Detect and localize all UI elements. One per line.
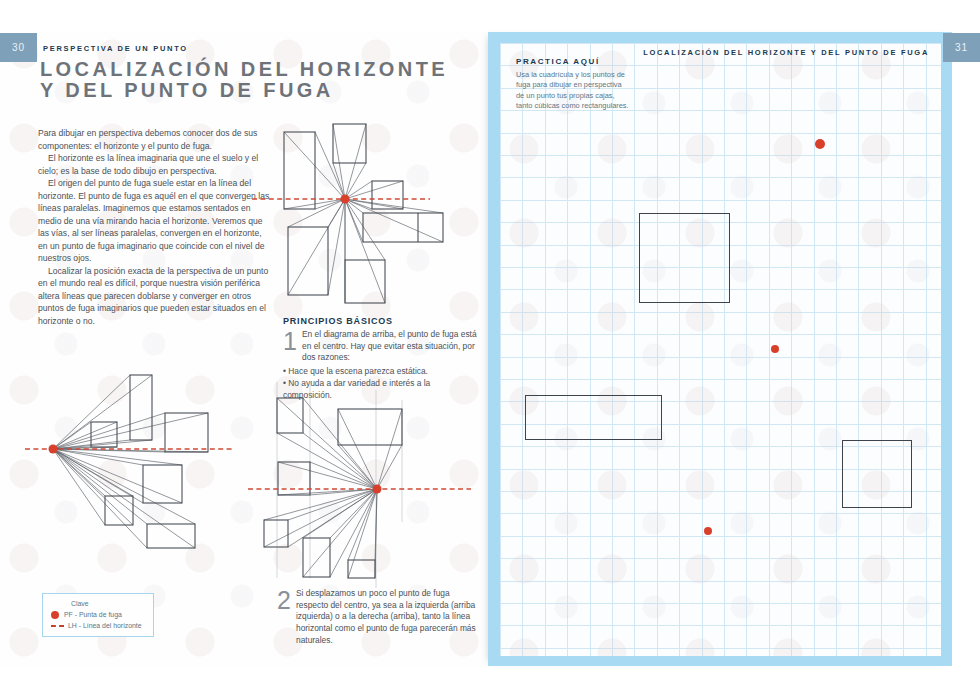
watermark-pattern: [500, 43, 941, 656]
intro-text: Para dibujar en perspectiva debemos cono…: [38, 127, 271, 327]
step-2: 2 Si desplazamos un poco el punto de fug…: [277, 588, 479, 647]
horizon-dash-icon: [51, 625, 64, 627]
book-spread: 30 PERSPECTIVA DE UN PUNTO LOCALIZACIÓN …: [0, 0, 980, 700]
vanishing-point-dot: [341, 195, 350, 204]
vanishing-point-dot: [49, 445, 58, 454]
paragraph: Para dibujar en perspectiva debemos cono…: [38, 127, 271, 152]
vanishing-point-dot: [771, 345, 779, 353]
page-right: LOCALIZACIÓN DEL HORIZONTE Y DEL PUNTO D…: [488, 32, 952, 666]
legend-item-label: PF - Punta de fuga: [64, 609, 122, 620]
page-title-line2: Y DEL PUNTO DE FUGA: [40, 80, 448, 101]
page-number-badge-left: 30: [0, 33, 37, 62]
paragraph: El horizonte es la línea imaginaria que …: [38, 152, 271, 177]
practice-heading: PRACTICA AQUÍ: [516, 57, 630, 66]
step-1-number: 1: [283, 329, 298, 364]
running-header-left: PERSPECTIVA DE UN PUNTO: [43, 44, 188, 53]
page-left: 30 PERSPECTIVA DE UN PUNTO LOCALIZACIÓN …: [0, 32, 490, 666]
vanishing-point-dot: [815, 139, 825, 149]
paragraph: Localizar la posición exacta de la persp…: [38, 265, 271, 328]
principios-heading: PRINCIPIOS BÁSICOS: [283, 316, 479, 326]
paragraph: El origen del punto de fuga suele estar …: [38, 177, 271, 265]
legend-item-horizon-line: LH - Línea del horizonte: [51, 620, 147, 631]
practice-body: Usa la cuadrícula y los puntos de fuga p…: [516, 70, 630, 112]
practice-rectangle-wide: [525, 395, 662, 440]
vanishing-point-dot: [373, 485, 382, 494]
legend-box: Clave PF - Punta de fuga LH - Línea del …: [42, 593, 154, 637]
legend-item-vanishing-point: PF - Punta de fuga: [51, 609, 147, 620]
vanishing-point-dot: [704, 527, 712, 535]
practice-grid[interactable]: LOCALIZACIÓN DEL HORIZONTE Y DEL PUNTO D…: [500, 43, 941, 656]
page-number-left: 30: [12, 42, 25, 53]
legend-item-label: LH - Línea del horizonte: [68, 620, 142, 631]
page-title-line1: LOCALIZACIÓN DEL HORIZONTE: [40, 59, 448, 80]
legend-title: Clave: [71, 598, 147, 609]
step-1: 1 En el diagrama de arriba, el punto de …: [283, 329, 479, 364]
step-2-number: 2: [277, 588, 292, 647]
running-header-right: LOCALIZACIÓN DEL HORIZONTE Y DEL PUNTO D…: [643, 48, 929, 57]
page-number-badge-right: 31: [943, 33, 980, 62]
diagram-left-vanishing-point: [22, 368, 258, 562]
practice-square-small: [842, 440, 912, 508]
practice-instructions: PRACTICA AQUÍ Usa la cuadrícula y los pu…: [516, 57, 630, 112]
practice-square-large: [639, 213, 730, 303]
step-1-text: En el diagrama de arriba, el punto de fu…: [302, 329, 479, 364]
step-2-text: Si desplazamos un poco el punto de fuga …: [296, 588, 479, 647]
diagram-central-vanishing-point: [250, 108, 480, 318]
vanishing-point-dot-icon: [51, 611, 59, 619]
page-title: LOCALIZACIÓN DEL HORIZONTE Y DEL PUNTO D…: [40, 59, 448, 101]
page-number-right: 31: [955, 42, 968, 53]
diagram-right-vanishing-point: [243, 372, 478, 588]
